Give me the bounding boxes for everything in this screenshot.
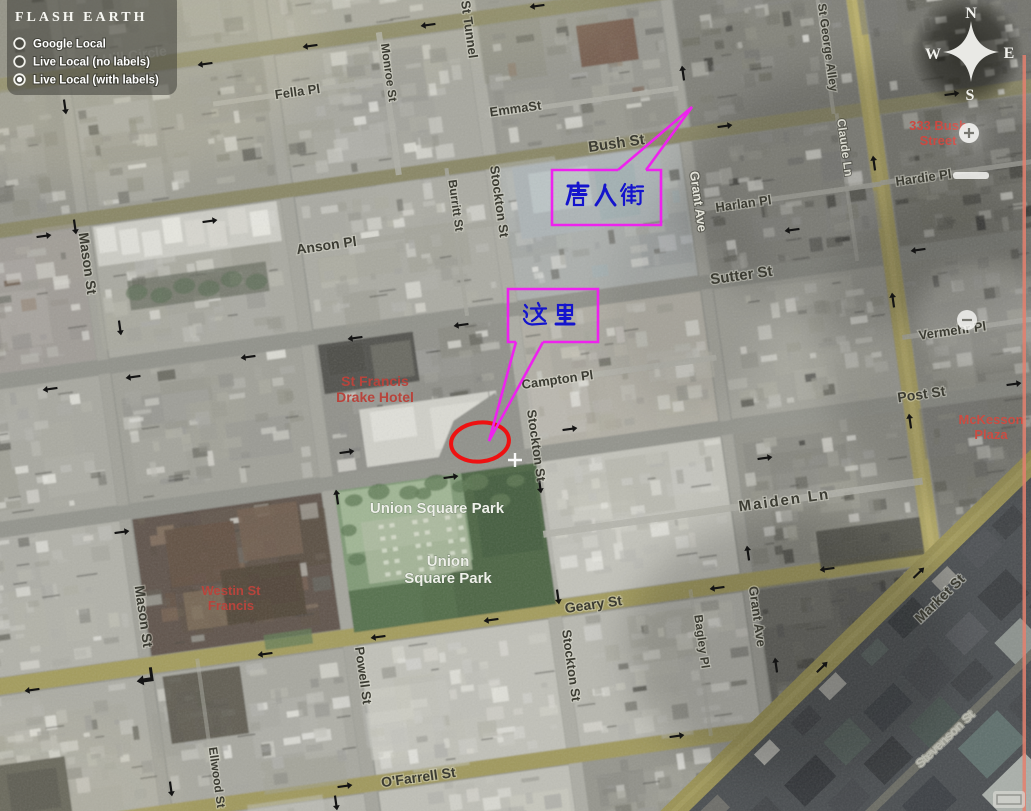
svg-text:McKesson: McKesson <box>958 412 1023 427</box>
svg-text:Union Square Park: Union Square Park <box>370 500 505 517</box>
svg-text:St Francis: St Francis <box>341 373 409 389</box>
svg-text:Live Local (with labels): Live Local (with labels) <box>33 75 159 87</box>
svg-text:Union: Union <box>427 553 470 570</box>
svg-text:N: N <box>965 5 977 22</box>
svg-text:Plaza: Plaza <box>974 427 1008 442</box>
svg-text:Street: Street <box>920 133 958 148</box>
svg-text:S: S <box>966 87 975 104</box>
svg-text:Drake Hotel: Drake Hotel <box>336 389 414 405</box>
svg-text:E: E <box>1004 45 1015 62</box>
svg-text:Google Local: Google Local <box>33 39 106 51</box>
svg-text:Square Park: Square Park <box>404 570 492 587</box>
svg-text:W: W <box>925 46 941 63</box>
svg-text:Westin St: Westin St <box>202 583 262 598</box>
svg-text:Francis: Francis <box>208 598 254 613</box>
svg-text:Live Local (no labels): Live Local (no labels) <box>33 57 150 69</box>
svg-text:FLASH EARTH: FLASH EARTH <box>15 10 147 25</box>
